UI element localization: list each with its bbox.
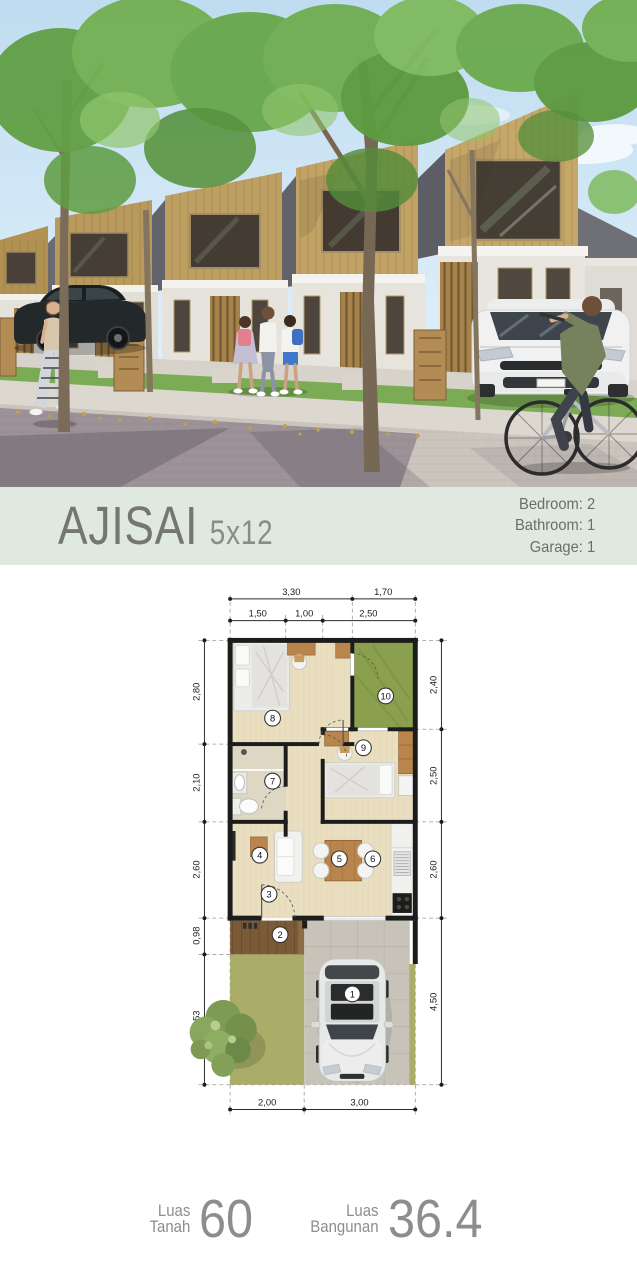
marker-bedroom-1: 8 (269, 714, 274, 724)
dim-top-outer-2: 1,70 (374, 587, 392, 597)
floorplan: 3,30 1,70 1,50 1,00 2,50 2,80 2,10 2,60 … (161, 583, 477, 1156)
land-label-line2: Tanah (150, 1219, 191, 1235)
side-grass (409, 964, 415, 1085)
marker-terrace: 2 (277, 930, 282, 940)
marker-foyer: 3 (266, 890, 271, 900)
marker-living: 4 (257, 851, 262, 861)
spec-bedroom: Bedroom: 2 (515, 494, 595, 516)
dim-right-4: 4,50 (428, 993, 438, 1011)
building-area-value: 36.4 (388, 1192, 483, 1246)
land-area-label: Luas Tanah (150, 1203, 191, 1235)
dim-right-3: 2,60 (428, 860, 438, 878)
dim-top-inner-1: 1,50 (248, 609, 266, 619)
dim-right-1: 2,40 (428, 676, 438, 694)
building-label-line2: Bangunan (311, 1219, 379, 1235)
dim-top-inner-3: 2,50 (359, 609, 377, 619)
dim-left-2: 2,10 (191, 773, 201, 791)
dim-bottom-1: 2,00 (258, 1098, 276, 1108)
terrace (242, 923, 256, 929)
floorplan-section: 3,30 1,70 1,50 1,00 2,50 2,80 2,10 2,60 … (0, 565, 637, 1156)
hero-photo (0, 0, 637, 487)
marker-garden: 10 (380, 691, 390, 701)
banner-title-wrap: AJISAI 5x12 (58, 499, 273, 553)
marker-kitchen: 6 (370, 854, 375, 864)
product-title: AJISAI (58, 499, 198, 553)
dim-left-3: 2,60 (191, 860, 201, 878)
land-area-value: 60 (199, 1192, 253, 1246)
terrace-deck (230, 921, 304, 955)
dim-left-1: 2,80 (191, 683, 201, 701)
title-banner: AJISAI 5x12 Bedroom: 2 Bathroom: 1 Garag… (0, 487, 637, 565)
brochure-sheet: AJISAI 5x12 Bedroom: 2 Bathroom: 1 Garag… (0, 0, 637, 1280)
marker-bathroom: 7 (269, 776, 274, 786)
dim-bottom-2: 3,00 (350, 1098, 368, 1108)
dim-top-inner-2: 1,00 (295, 609, 313, 619)
building-area-group: Luas Bangunan 36.4 (301, 1192, 493, 1246)
marker-bedroom-2: 9 (360, 743, 365, 753)
car-topview (311, 959, 393, 1083)
building-area-label: Luas Bangunan (311, 1203, 379, 1235)
area-figures: Luas Tanah 60 Luas Bangunan 36.4 (0, 1192, 637, 1246)
spec-bathroom: Bathroom: 1 (515, 515, 595, 537)
dim-top-outer-1: 3,30 (282, 587, 300, 597)
marker-dining: 5 (336, 854, 341, 864)
dim-left-4: 0,98 (191, 927, 201, 945)
dim-right-2: 2,50 (428, 767, 438, 785)
product-size: 5x12 (210, 516, 274, 550)
spec-garage: Garage: 1 (515, 537, 595, 559)
spec-list: Bedroom: 2 Bathroom: 1 Garage: 1 (515, 494, 595, 559)
marker-garage: 1 (349, 989, 354, 999)
hero-photo-illustration (0, 0, 637, 487)
kitchen (391, 824, 413, 917)
land-area-group: Luas Tanah 60 (144, 1192, 259, 1246)
